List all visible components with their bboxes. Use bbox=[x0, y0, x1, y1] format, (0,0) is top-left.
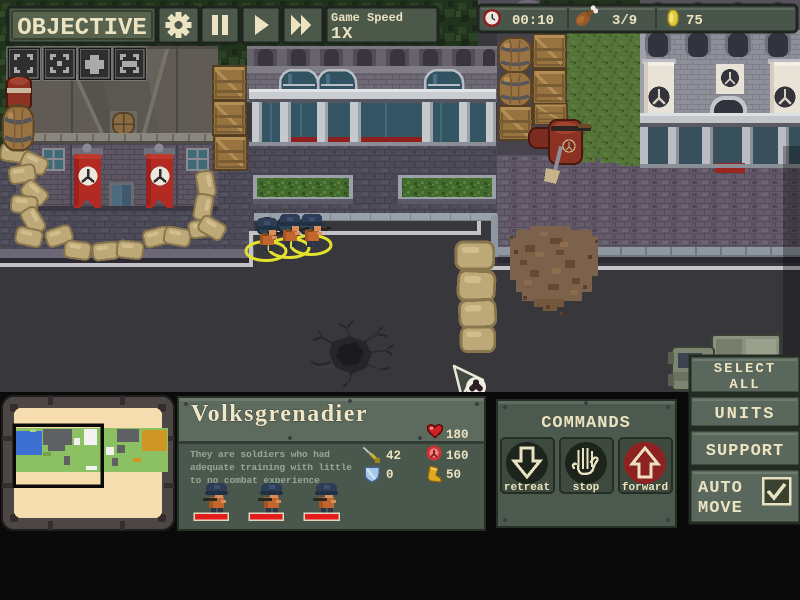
svg-text:SUPPORT: SUPPORT bbox=[706, 442, 784, 461]
svg-text:1X: 1X bbox=[331, 25, 353, 44]
svg-text:adequate training with little: adequate training with little bbox=[190, 462, 352, 473]
svg-text:SELECT: SELECT bbox=[714, 361, 776, 377]
svg-text:42: 42 bbox=[386, 449, 401, 463]
svg-text:0: 0 bbox=[386, 468, 394, 482]
svg-text:Volksgrenadier: Volksgrenadier bbox=[191, 401, 368, 427]
svg-text:3/9: 3/9 bbox=[612, 13, 637, 29]
svg-text:ALL: ALL bbox=[729, 377, 760, 393]
svg-text:They are soldiers who had: They are soldiers who had bbox=[190, 449, 330, 460]
svg-text:Game Speed: Game Speed bbox=[331, 11, 403, 25]
svg-text:MOVE: MOVE bbox=[698, 499, 743, 518]
svg-text:UNITS: UNITS bbox=[714, 405, 775, 424]
svg-text:forward: forward bbox=[622, 482, 668, 494]
svg-text:AUTO: AUTO bbox=[698, 479, 743, 498]
svg-text:160: 160 bbox=[446, 449, 469, 463]
svg-text:stop: stop bbox=[573, 482, 600, 494]
svg-text:75: 75 bbox=[686, 13, 703, 29]
svg-text:180: 180 bbox=[446, 428, 469, 442]
svg-text:50: 50 bbox=[446, 468, 461, 482]
svg-text:retreat: retreat bbox=[504, 482, 550, 494]
svg-text:OBJECTIVE: OBJECTIVE bbox=[17, 15, 147, 42]
svg-text:00:10: 00:10 bbox=[512, 13, 554, 29]
svg-text:COMMANDS: COMMANDS bbox=[541, 414, 631, 433]
